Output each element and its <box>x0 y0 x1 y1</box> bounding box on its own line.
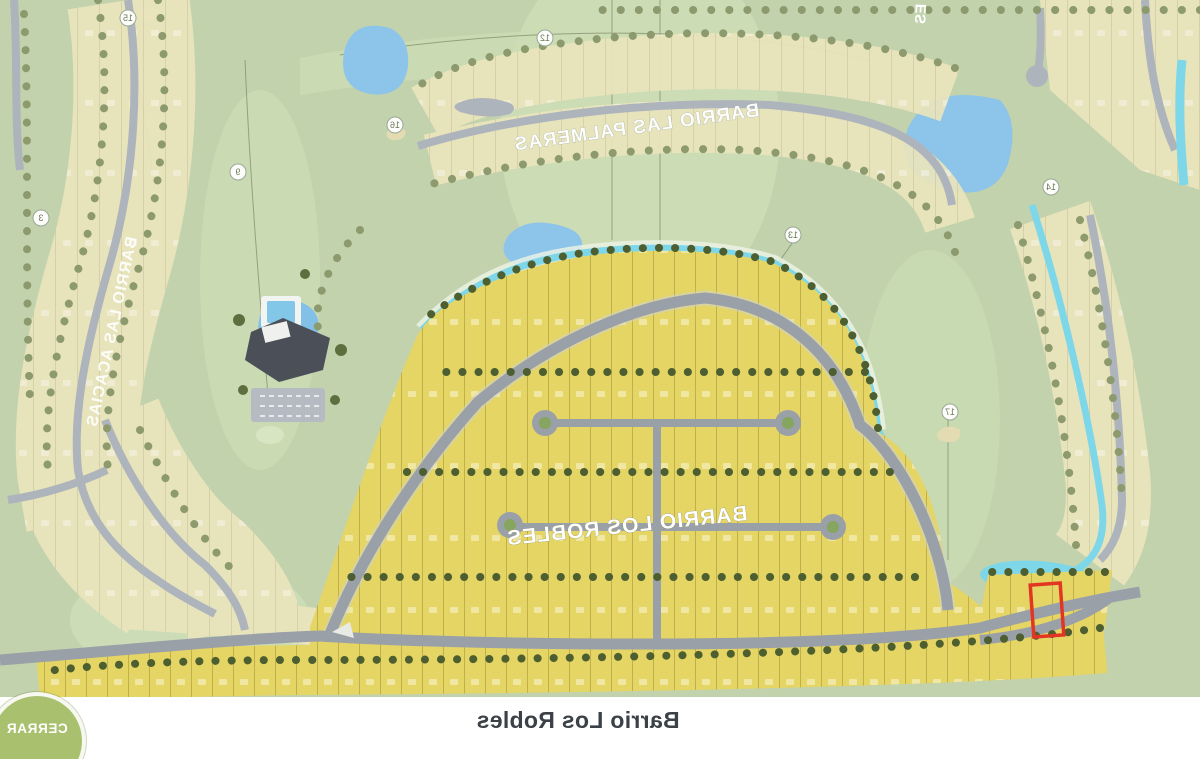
hole-number: 16 <box>390 120 400 130</box>
hole-number: 3 <box>38 213 43 223</box>
map-canvas[interactable]: 15121614931317 BARRIO LAS PALMERAS BARRI… <box>0 0 1200 697</box>
hole-number: 14 <box>1046 182 1056 192</box>
hole-number: 17 <box>945 407 955 417</box>
hole-number: 12 <box>540 33 550 43</box>
hole-number: 15 <box>123 13 133 23</box>
label-partial-top: ES <box>912 4 930 25</box>
barrio-caption: Barrio Los Robles <box>476 707 679 734</box>
hole-number: 9 <box>235 167 240 177</box>
hole-number: 13 <box>788 230 798 240</box>
caption-bar: Barrio Los Robles <box>0 697 1200 759</box>
map-viewer: 15121614931317 BARRIO LAS PALMERAS BARRI… <box>0 0 1200 759</box>
close-button-label: CERRAR <box>6 721 67 736</box>
